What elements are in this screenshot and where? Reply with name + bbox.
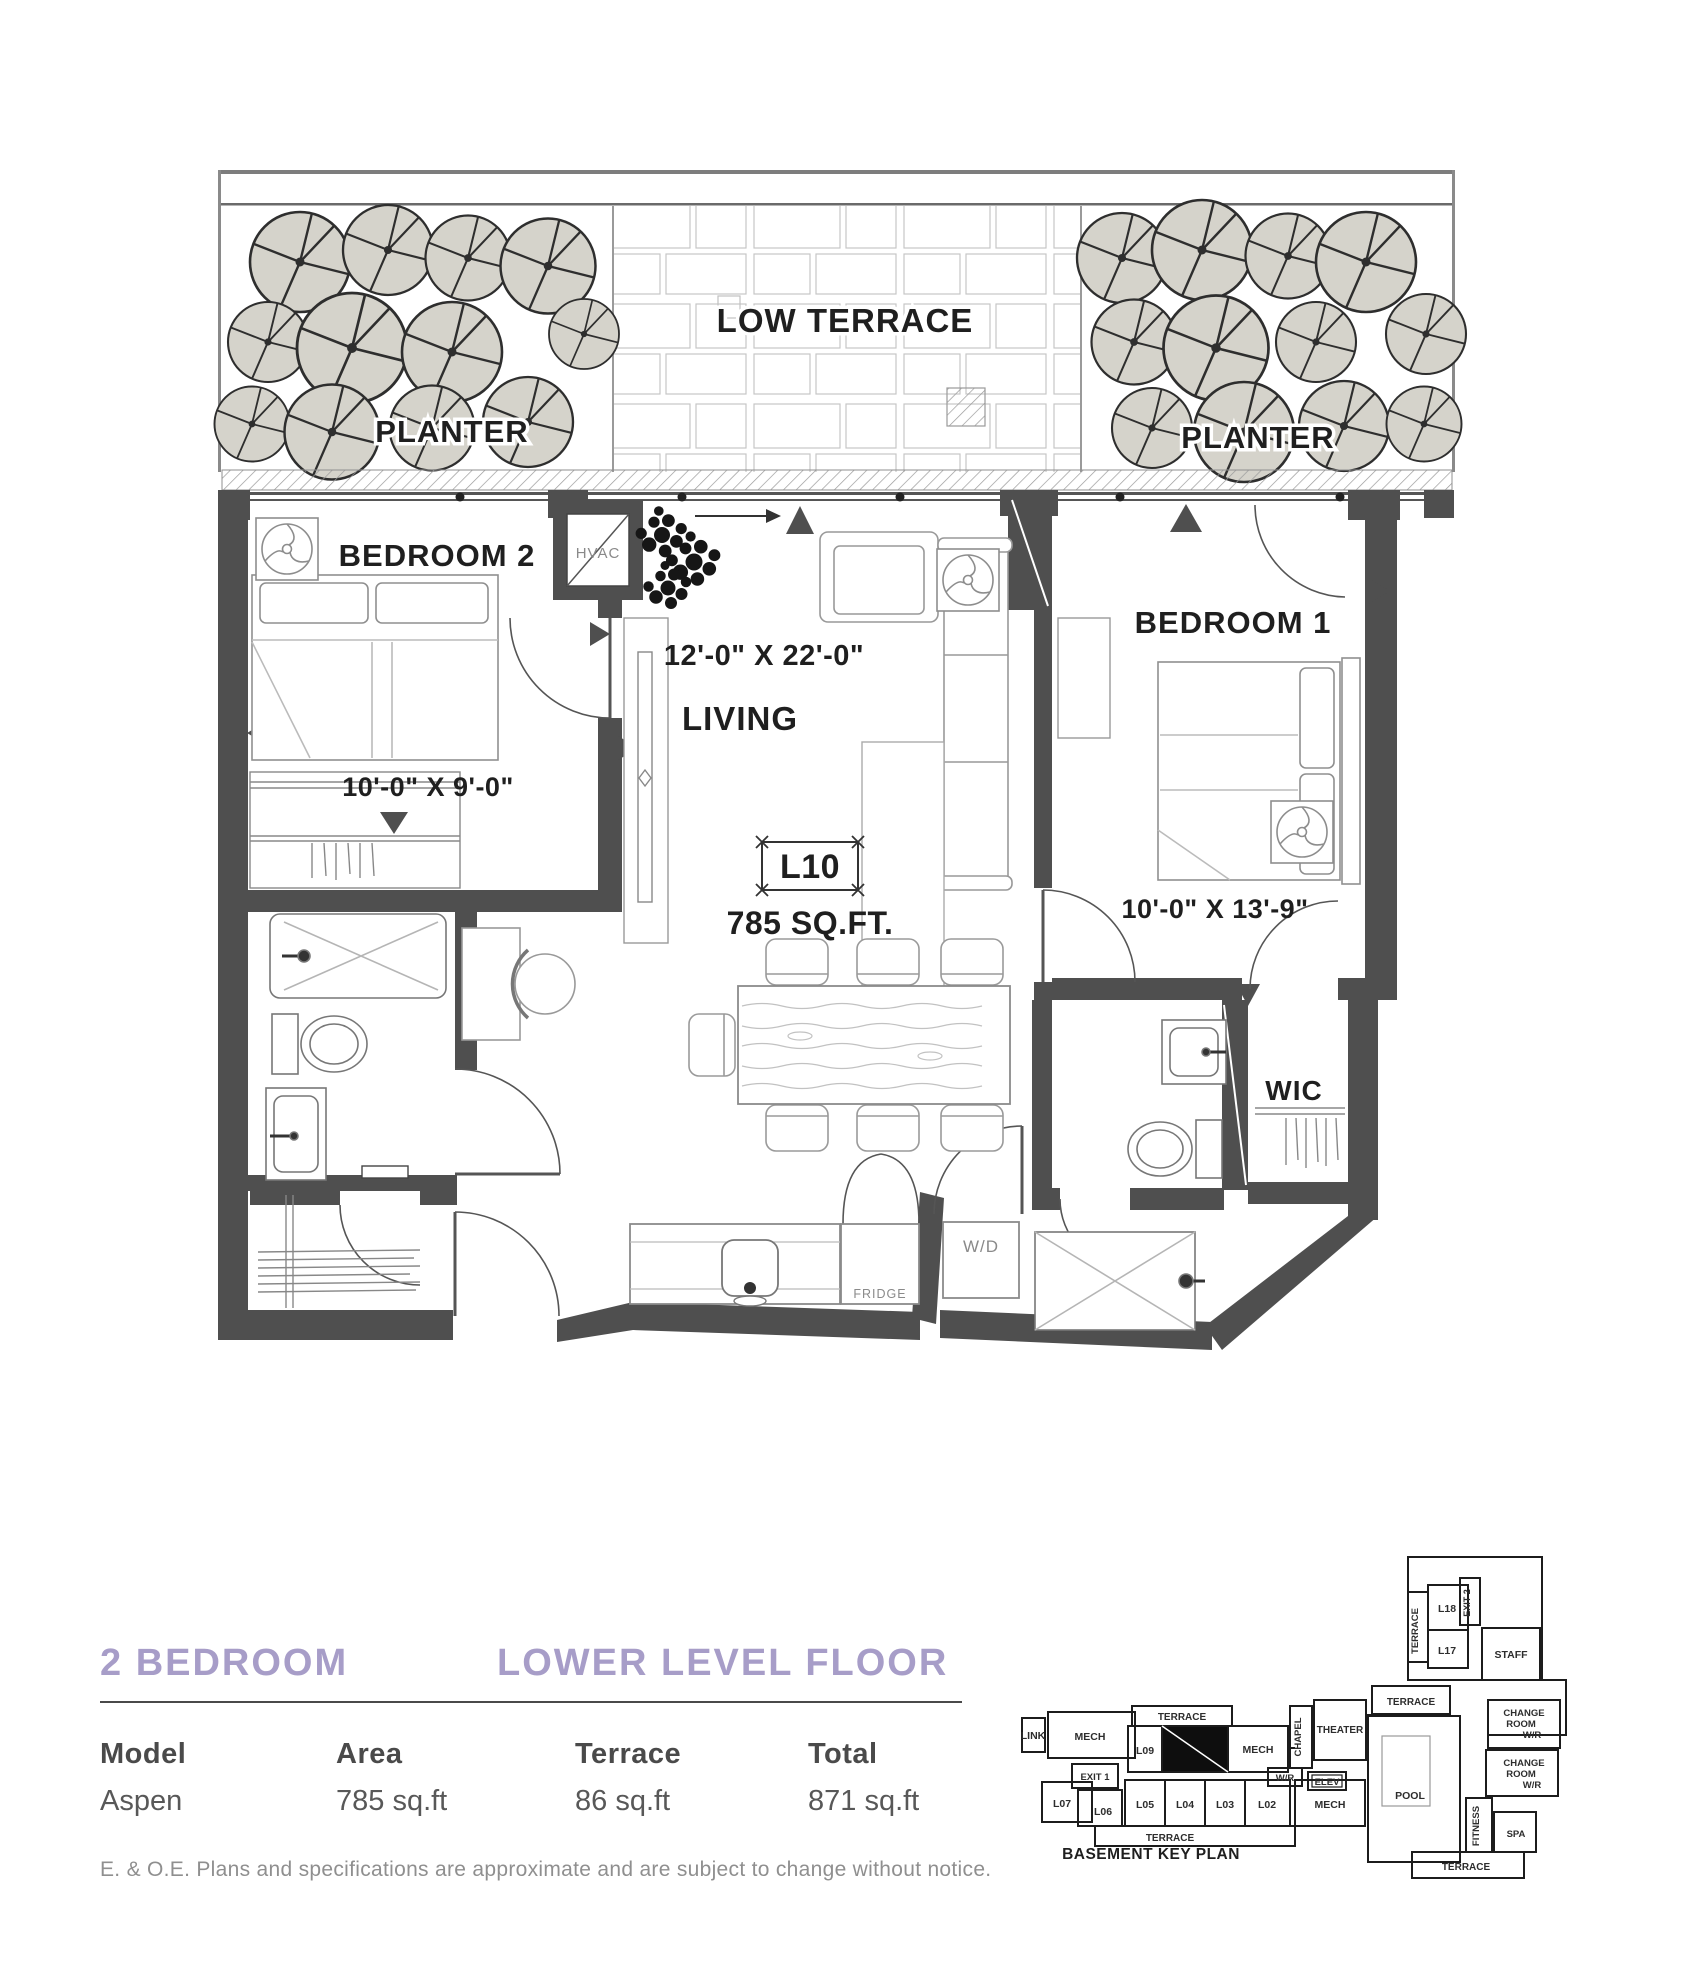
basement-key-plan: LINK MECH TERRACE L09 MECH CHAPEL THEATE… [1020,1515,1580,1915]
unit-type-title: 2 BEDROOM [100,1642,348,1685]
kp-wr: W/R [1276,1773,1295,1784]
spec-column-model: Model Aspen [100,1738,186,1818]
level-title: LOWER LEVEL FLOOR [497,1642,948,1685]
spec-column-terrace: Terrace 86 sq.ft [575,1738,681,1818]
unit-number: L10 [780,848,840,886]
kp-pool: POOL [1395,1790,1425,1802]
spec-label: Model [100,1738,186,1771]
spec-label: Area [336,1738,447,1771]
bed-2 [252,575,498,760]
hvac-label: HVAC [576,545,621,562]
plant-icon [636,506,721,609]
bathroom-sink [266,1088,326,1180]
kp-mech-mid: MECH [1243,1744,1274,1756]
kp-spa: SPA [1507,1829,1526,1840]
kp-terrace-upper: TERRACE [1410,1608,1421,1654]
spec-label: Total [808,1738,919,1771]
kp-l07: L07 [1053,1798,1071,1810]
low-terrace-paving [614,206,1080,472]
ceiling-fan-icon [1271,801,1333,863]
tv-console [624,618,668,943]
kp-change2: CHANGE [1503,1758,1544,1769]
divider-rule [100,1701,962,1703]
bathtub [270,914,446,998]
kp-room1: ROOM [1506,1719,1536,1730]
unit-area: 785 SQ.FT. [727,905,894,941]
kp-l04: L04 [1176,1799,1194,1811]
bedroom2-label: BEDROOM 2 [339,538,536,573]
terrace-band: LOW TERRACE PLANTER PLANTER [215,170,1467,482]
kp-terrace-mid: TERRACE [1387,1697,1436,1708]
ceiling-fan-icon [937,549,999,611]
vanity-desk [462,928,575,1040]
spec-value: 86 sq.ft [575,1785,681,1818]
living-dim: 12'-0" X 22'-0" [664,640,864,672]
ceiling-fan-icon [256,518,318,580]
kp-chapel: CHAPEL [1293,1717,1304,1756]
bedroom2-dim: 10'-0" X 9'-0" [342,772,514,802]
ensuite-sink [1162,1020,1226,1084]
kp-mech-right: MECH [1315,1799,1346,1811]
kp-l05: L05 [1136,1799,1154,1811]
entry-arrow-icon [695,506,814,534]
kp-elev: ELEV [1315,1777,1340,1788]
kitchen: FRIDGE W/D [630,1222,1019,1306]
spec-value: 871 sq.ft [808,1785,919,1818]
living-label: LIVING [682,700,798,737]
spec-column-area: Area 785 sq.ft [336,1738,447,1818]
wic-label: WIC [1265,1075,1322,1106]
kp-wr1: W/R [1523,1730,1542,1741]
wd-label: W/D [963,1237,999,1256]
kp-l18: L18 [1438,1603,1456,1615]
shower [1035,1232,1205,1330]
kp-l09: L09 [1136,1745,1154,1757]
spec-label: Terrace [575,1738,681,1771]
dining-set [689,939,1010,1151]
planter-left-label: PLANTER [375,414,528,449]
kp-exit2: EXIT 2 [1462,1589,1472,1617]
kp-l06: L06 [1094,1806,1112,1818]
bedroom1-dim: 10'-0" X 13'-9" [1121,894,1308,924]
floorplan-sheet: LOW TERRACE PLANTER PLANTER [0,0,1700,1984]
kp-change1: CHANGE [1503,1708,1544,1719]
spec-value: 785 sq.ft [336,1785,447,1818]
kp-l02: L02 [1258,1799,1276,1811]
kp-terrace-top: TERRACE [1158,1712,1207,1723]
bedroom1-label: BEDROOM 1 [1135,605,1332,640]
hvac-closet: HVAC [567,514,629,586]
washer-dryer [943,1222,1019,1298]
kp-theater: THEATER [1317,1725,1364,1736]
kp-link: LINK [1021,1730,1046,1742]
kp-fitness: FITNESS [1471,1806,1482,1846]
kp-l17: L17 [1438,1645,1456,1657]
dresser [1058,618,1110,738]
kp-room2: ROOM [1506,1769,1536,1780]
kp-terrace-bottom: TERRACE [1146,1833,1195,1844]
wic-closet-rod [1255,1108,1345,1168]
kp-mech-left: MECH [1075,1731,1106,1743]
ensuite-toilet [1128,1120,1222,1178]
kp-terrace-right: TERRACE [1442,1862,1491,1873]
toilet [272,1014,367,1074]
floor-plan-drawing: LOW TERRACE PLANTER PLANTER [0,0,1700,1480]
kp-exit1: EXIT 1 [1080,1772,1110,1783]
spec-value: Aspen [100,1785,186,1818]
spec-column-total: Total 871 sq.ft [808,1738,919,1818]
low-terrace-label: LOW TERRACE [717,302,974,339]
disclaimer-text: E. & O.E. Plans and specifications are a… [100,1858,991,1882]
planter-right-label: PLANTER [1181,420,1334,455]
kp-staff: STAFF [1494,1649,1528,1661]
kp-l03: L03 [1216,1799,1234,1811]
keyplan-caption: BASEMENT KEY PLAN [1062,1846,1240,1863]
fridge-label: FRIDGE [853,1287,906,1301]
kp-wr2: W/R [1523,1780,1542,1791]
window-wall [222,470,1452,502]
